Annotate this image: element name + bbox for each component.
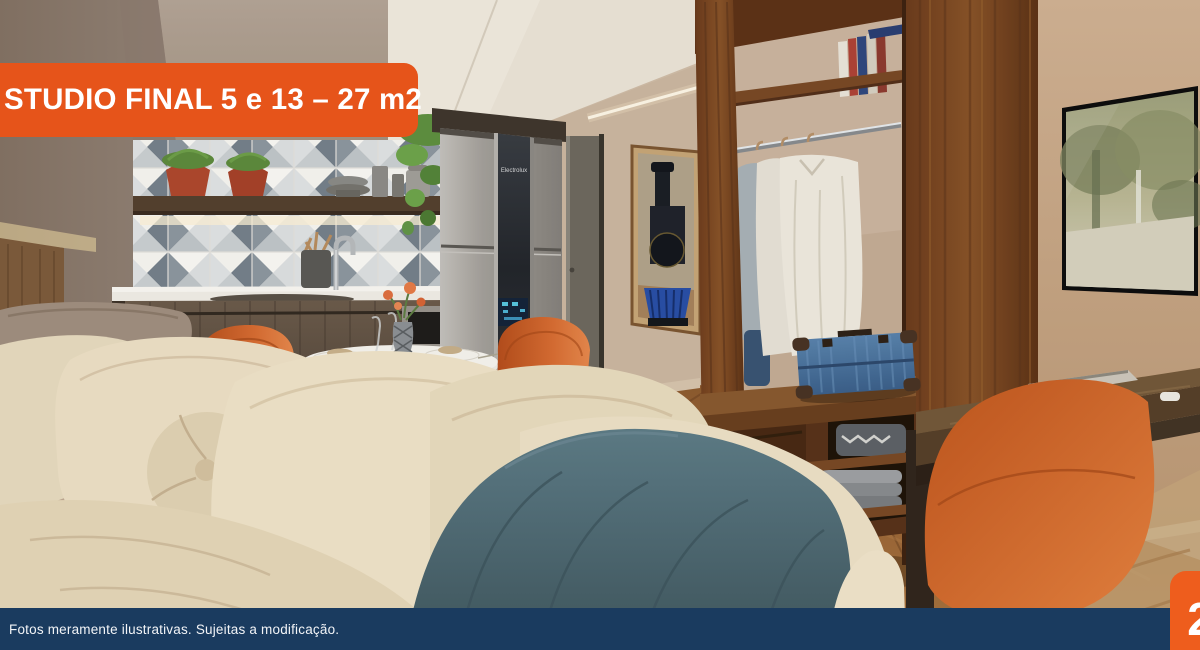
disclaimer-text: Fotos meramente ilustrativas. Sujeitas a… bbox=[9, 622, 339, 637]
brochure-slide: Electrolux bbox=[0, 0, 1200, 650]
footer-bar: Fotos meramente ilustrativas. Sujeitas a… bbox=[0, 608, 1200, 650]
title-banner: STUDIO FINAL 5 e 13 – 27 m2 bbox=[0, 63, 418, 137]
page-number: 2 bbox=[1187, 592, 1200, 646]
slide-title: STUDIO FINAL 5 e 13 – 27 m2 bbox=[4, 83, 422, 117]
page-number-badge: 2 bbox=[1170, 571, 1200, 650]
